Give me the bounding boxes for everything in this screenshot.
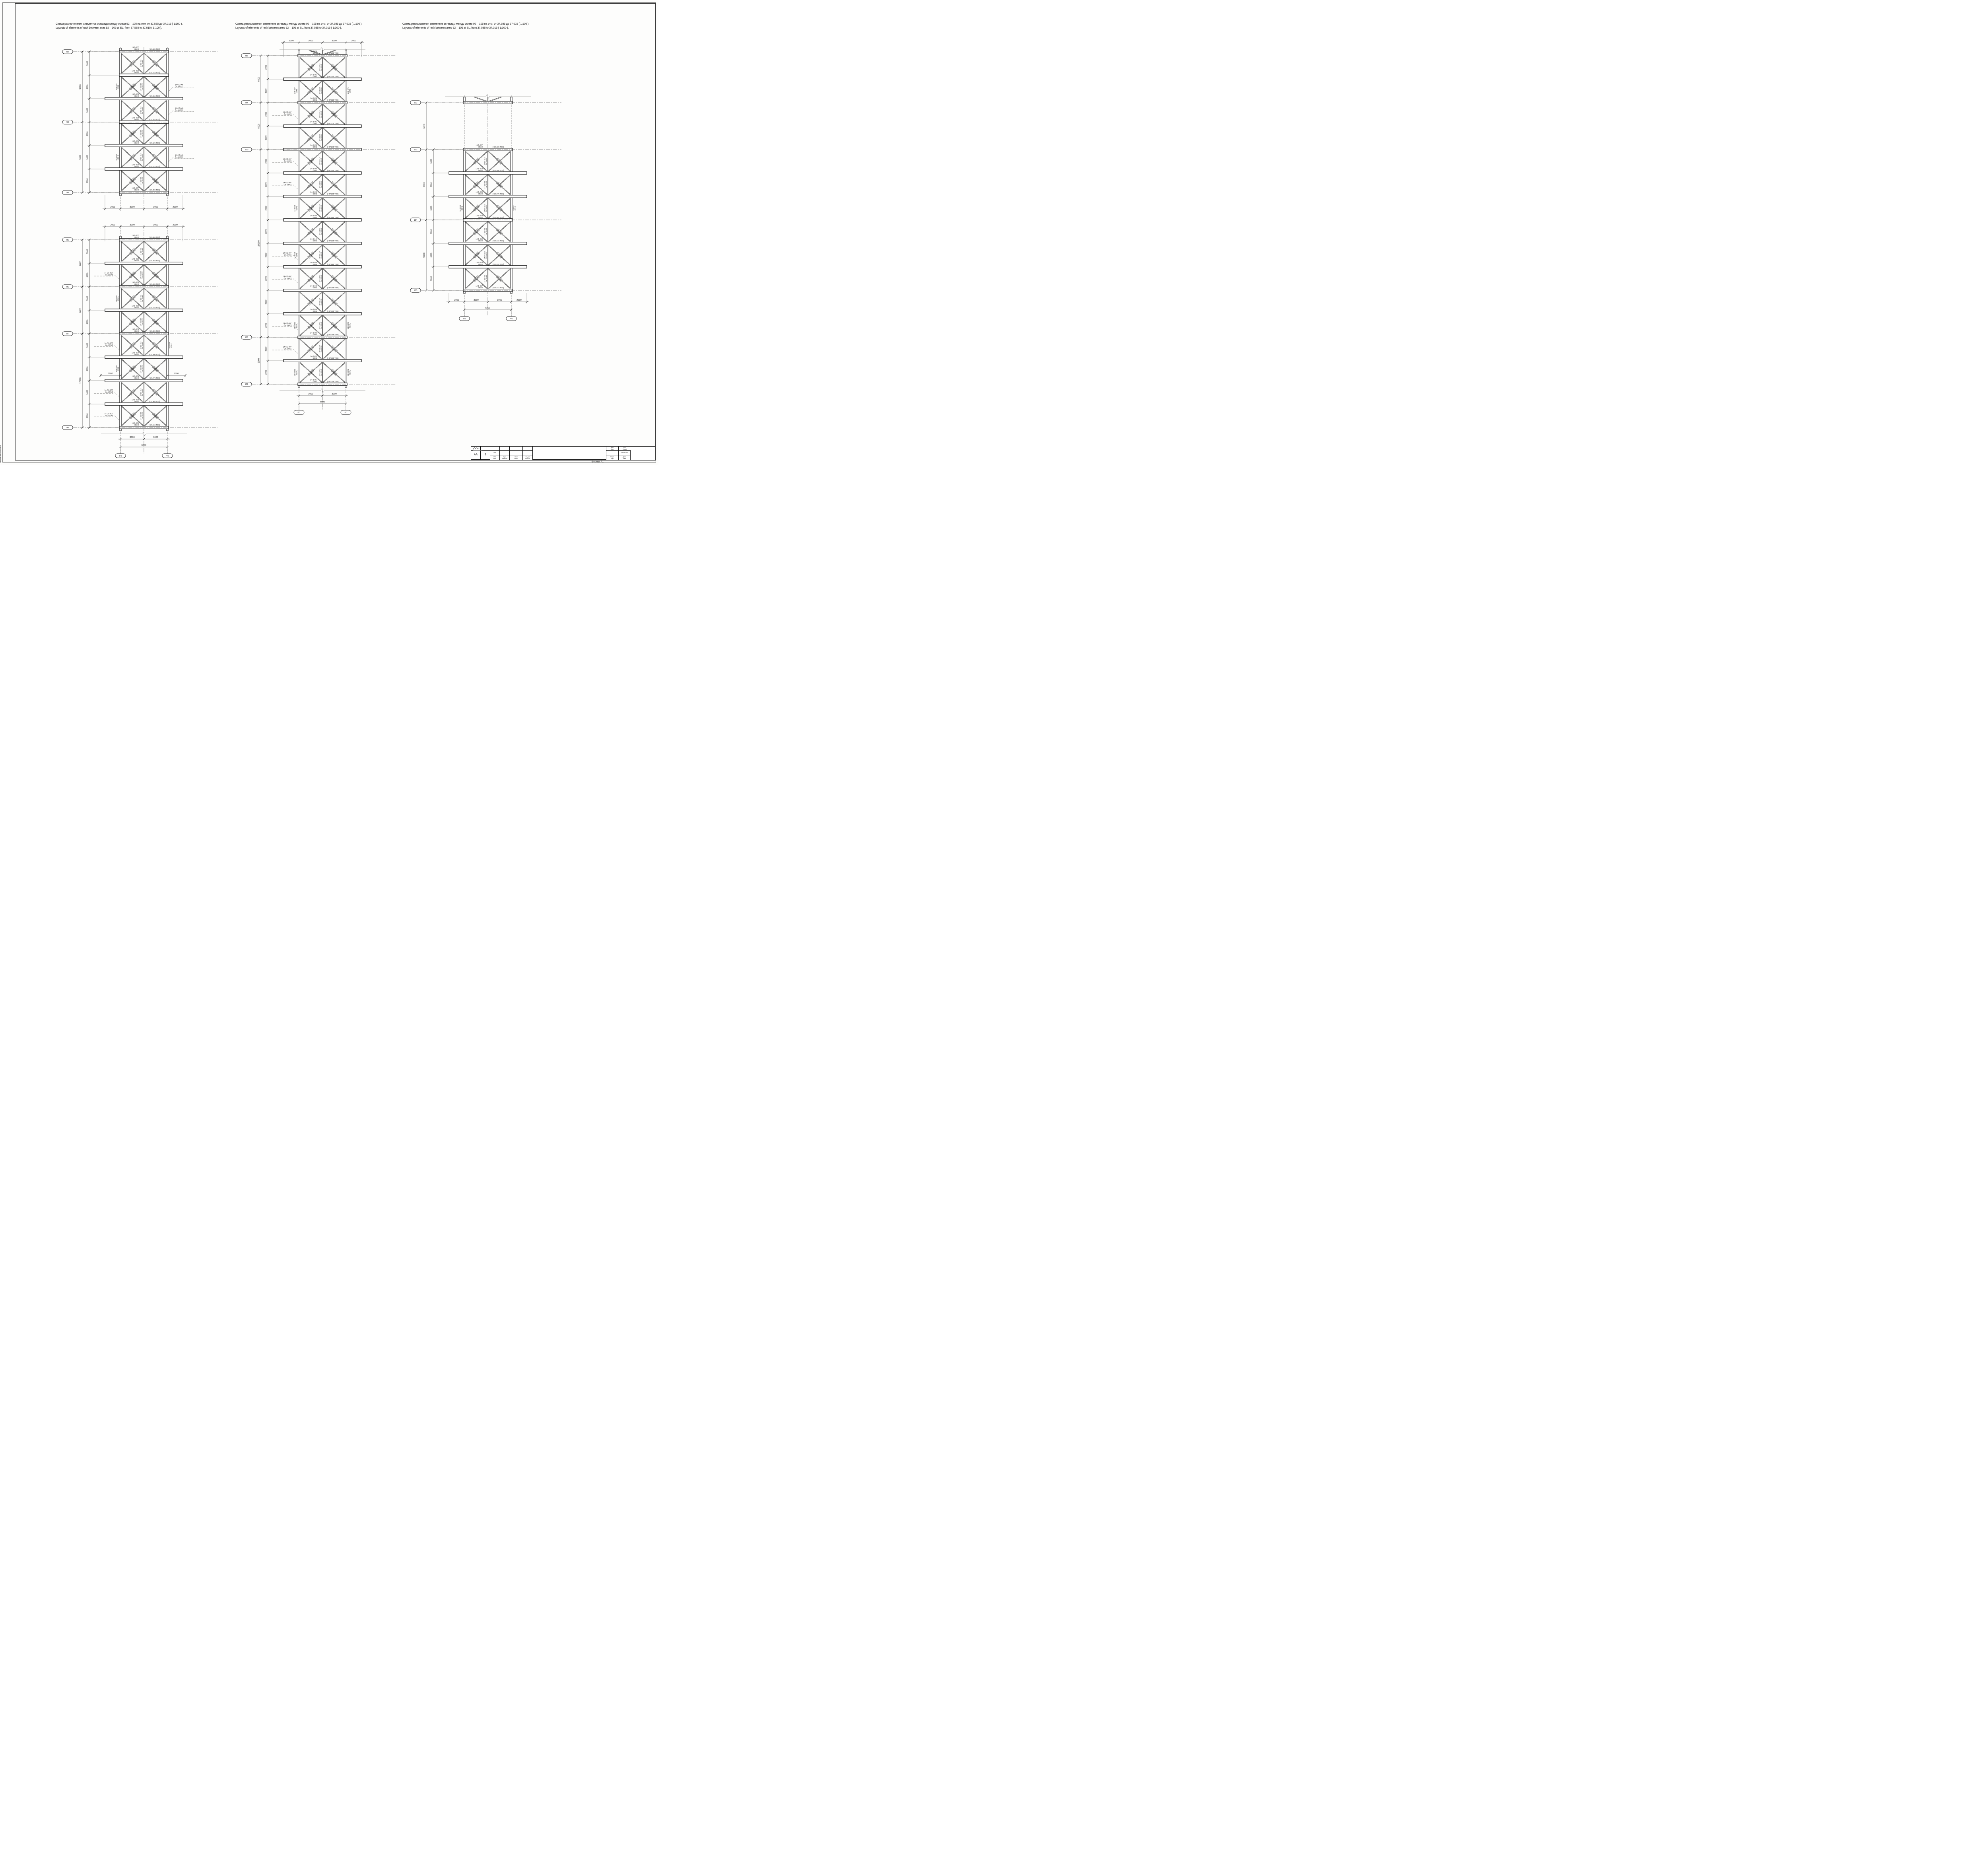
- svg-text:Gn.100X5: Gn.100X5: [142, 319, 144, 325]
- svg-text:I35H2: I35H2: [313, 76, 318, 78]
- column-label: 14-B-036I25H1: [294, 204, 298, 212]
- vertical-member-label: 14-CG-019Gn.100X5: [318, 64, 322, 71]
- svg-text:104: 104: [414, 219, 417, 222]
- svg-text:14-CG-010: 14-CG-010: [318, 251, 320, 259]
- drawing-title-2-ru: Схема расположения элементов эстакады ме…: [235, 22, 362, 26]
- svg-text:14-CG-019: 14-CG-019: [140, 154, 142, 161]
- svg-text:98: 98: [66, 427, 69, 429]
- svg-text:3000: 3000: [153, 436, 158, 439]
- column-label: 14-B-075I25H1: [169, 342, 173, 349]
- svg-text:101: 101: [245, 336, 248, 339]
- svg-text:6000: 6000: [80, 261, 82, 266]
- svg-text:Gn.100X5: Gn.100X5: [284, 325, 292, 327]
- svg-text:Gn.100X5: Gn.100X5: [105, 415, 113, 417]
- svg-text:(+37.015 TOS): (+37.015 TOS): [493, 287, 504, 289]
- svg-text:I25H1: I25H1: [296, 206, 298, 210]
- vertical-member-label: 14-CG-010Gn.100X5: [318, 204, 322, 212]
- svg-text:3000: 3000: [153, 206, 158, 208]
- svg-text:I35H2: I35H2: [313, 263, 318, 265]
- drawing-title-1-en: Layouts of elements of rack between axes…: [56, 26, 182, 30]
- svg-text:I35H2: I35H2: [313, 52, 318, 54]
- svg-text:Gn.100X5: Gn.100X5: [142, 60, 144, 67]
- svg-text:I35H2: I35H2: [313, 357, 318, 359]
- svg-text:3000: 3000: [265, 323, 268, 328]
- svg-text:(+37.315 TOS): (+37.315 TOS): [327, 99, 339, 101]
- drawing-sheet: 3000300030003000300030009000900020003000…: [0, 0, 658, 465]
- vertical-member-label: 14-CG-010Gn.100X5: [318, 181, 322, 189]
- svg-text:3000: 3000: [87, 414, 89, 418]
- svg-text:I35H2: I35H2: [134, 354, 139, 356]
- svg-text:(+37.405 TOS): (+37.405 TOS): [149, 330, 160, 332]
- svg-text:(+37.375 TOS): (+37.375 TOS): [149, 377, 160, 379]
- svg-text:95: 95: [66, 239, 69, 241]
- column-label: 14-B-035I25H1: [294, 251, 298, 258]
- svg-text:92: 92: [66, 51, 69, 53]
- drawing-axes-95-98: 3000300030003000300030003000300060006000…: [62, 224, 217, 458]
- vertical-member-label: 14-CG-019Gn.100X5: [318, 111, 322, 118]
- drawing-title-3-ru: Схема расположения элементов эстакады ме…: [402, 22, 529, 26]
- svg-text:(+37.195 TOS): (+37.195 TOS): [327, 287, 339, 289]
- svg-text:А/1: А/1: [510, 318, 513, 320]
- svg-text:Gn.100X5: Gn.100X5: [105, 274, 113, 276]
- svg-text:I35H2: I35H2: [134, 330, 139, 332]
- svg-text:Gn.100X5: Gn.100X5: [175, 109, 183, 111]
- svg-text:3000: 3000: [497, 299, 502, 301]
- svg-text:14-CG-019: 14-CG-019: [318, 111, 320, 118]
- svg-text:24000: 24000: [258, 240, 260, 247]
- svg-text:3000: 3000: [265, 183, 268, 187]
- vertical-member-label: 14-CG-010Gn.100X5: [140, 365, 144, 373]
- vertical-member-label: 14-CG-019Gn.100X5: [484, 204, 487, 212]
- svg-text:I35H2: I35H2: [478, 263, 483, 265]
- svg-text:3000: 3000: [265, 253, 268, 258]
- svg-text:6000: 6000: [258, 358, 260, 363]
- svg-text:I35H2: I35H2: [478, 169, 483, 171]
- vertical-member-label: 14-CG-010Gn.100X5: [318, 251, 322, 259]
- vertical-member-label: 14-CG-019Gn.100X5: [318, 322, 322, 329]
- svg-text:14-CG-019: 14-CG-019: [484, 275, 485, 282]
- svg-text:97: 97: [66, 333, 69, 335]
- svg-text:2000: 2000: [110, 206, 115, 208]
- svg-text:(+37.240 TOS): (+37.240 TOS): [327, 216, 339, 218]
- svg-text:3000: 3000: [431, 276, 433, 281]
- svg-text:14-CG-019: 14-CG-019: [484, 251, 485, 259]
- drawing-axes-102-105: 3000300030003000300030006000900090002000…: [410, 94, 561, 321]
- svg-text:(+37.225 TOS): (+37.225 TOS): [327, 240, 339, 242]
- svg-text:I35H2: I35H2: [134, 119, 139, 121]
- svg-text:I35H2: I35H2: [313, 240, 318, 242]
- svg-text:I25H1: I25H1: [296, 370, 298, 375]
- vertical-member-label: 14-CG-019Gn.100X5: [140, 248, 144, 255]
- drawing-title-3: Схема расположения элементов эстакады ме…: [402, 22, 529, 30]
- svg-text:В/1: В/1: [119, 455, 122, 457]
- svg-text:3000: 3000: [87, 390, 89, 395]
- svg-text:14-CG-019: 14-CG-019: [140, 412, 142, 420]
- svg-text:I35H2: I35H2: [134, 283, 139, 285]
- svg-text:3000: 3000: [265, 159, 268, 164]
- svg-text:3000: 3000: [130, 224, 134, 226]
- tb-date-value: 25.09.23: [619, 451, 631, 455]
- svg-text:14-CG-010: 14-CG-010: [140, 389, 142, 396]
- svg-text:3000: 3000: [431, 183, 433, 187]
- svg-text:Gn.100X5: Gn.100X5: [284, 348, 292, 350]
- svg-text:6000: 6000: [258, 124, 260, 128]
- vertical-member-label: 14-CG-019Gn.100X5: [318, 134, 322, 142]
- svg-text:I35H2: I35H2: [313, 169, 318, 171]
- drawing-canvas: 3000300030003000300030009000900020003000…: [0, 0, 658, 465]
- svg-text:Gn.100X5: Gn.100X5: [175, 86, 183, 88]
- svg-text:I35H2: I35H2: [313, 122, 318, 124]
- svg-text:I25H1: I25H1: [349, 88, 351, 93]
- svg-text:Gn.100X5: Gn.100X5: [142, 412, 144, 419]
- svg-text:(+37.075 TOS): (+37.075 TOS): [493, 193, 504, 195]
- vertical-member-label: 14-CG-019Gn.100X5: [484, 275, 487, 282]
- svg-text:3000: 3000: [87, 343, 89, 348]
- svg-text:В/1: В/1: [298, 412, 301, 414]
- tb-signature-cell: [606, 451, 619, 455]
- svg-text:I35H2: I35H2: [134, 142, 139, 144]
- svg-text:3000: 3000: [265, 112, 268, 117]
- format-label: Формат А1: [584, 461, 612, 463]
- svg-text:6000: 6000: [423, 124, 426, 128]
- svg-text:Gn.100X5: Gn.100X5: [142, 154, 144, 161]
- vertical-member-label: 14-CG-019Gn.100X5: [318, 298, 322, 306]
- vertical-member-label: 14-CG-019Gn.100X5: [140, 107, 144, 114]
- svg-text:Gn.100X5: Gn.100X5: [320, 252, 322, 258]
- vertical-member-label: 14-CG-019Gn.100X5: [140, 412, 144, 420]
- svg-text:14-CG-019: 14-CG-019: [140, 60, 142, 67]
- svg-text:14-CG-019: 14-CG-019: [484, 181, 485, 189]
- svg-text:(+37.330 TOS): (+37.330 TOS): [327, 76, 339, 78]
- column-label: 14-B-072I25H1: [347, 322, 351, 329]
- svg-text:Gn.100X5: Gn.100X5: [320, 87, 322, 94]
- svg-text:14-CG-019: 14-CG-019: [318, 369, 320, 376]
- svg-text:(+37.345 TOS): (+37.345 TOS): [149, 424, 160, 426]
- svg-text:2000: 2000: [454, 299, 459, 301]
- vertical-member-label: 14-CG-019Gn.100X5: [140, 83, 144, 91]
- svg-text:14-CG-019: 14-CG-019: [140, 271, 142, 279]
- svg-text:I35H2: I35H2: [134, 307, 139, 309]
- column-label: 14-B-032I35H2: [115, 83, 119, 90]
- svg-text:Gn.100X5: Gn.100X5: [486, 205, 487, 212]
- svg-text:14-CG-019: 14-CG-019: [318, 345, 320, 353]
- svg-text:3000: 3000: [87, 296, 89, 301]
- svg-text:14-CG-019: 14-CG-019: [484, 228, 485, 235]
- svg-text:2000: 2000: [173, 224, 177, 226]
- svg-text:14-CG-019: 14-CG-019: [318, 64, 320, 71]
- vertical-member-label: 14-CG-019Gn.100X5: [318, 87, 322, 95]
- svg-text:Gn.100X5: Gn.100X5: [142, 177, 144, 184]
- svg-text:14-CG-019: 14-CG-019: [140, 295, 142, 302]
- svg-text:I25H1: I25H1: [117, 366, 119, 371]
- vertical-member-label: 14-CG-019Gn.100X5: [140, 60, 144, 67]
- svg-text:Gn.100X5: Gn.100X5: [320, 64, 322, 71]
- svg-text:3000: 3000: [308, 40, 313, 42]
- svg-text:100: 100: [245, 149, 248, 151]
- vertical-member-label: 14-CG-019Gn.100X5: [140, 154, 144, 161]
- column-label: 14-B-032I35H2: [115, 154, 119, 161]
- svg-text:I25H1: I25H1: [349, 323, 351, 328]
- svg-text:I35H2: I35H2: [134, 424, 139, 426]
- svg-text:(+37.345 TOS): (+37.345 TOS): [327, 52, 339, 54]
- svg-text:3000: 3000: [265, 65, 268, 70]
- vertical-member-label: 14-CG-019Gn.100X5: [140, 271, 144, 279]
- svg-text:Gn.100X5: Gn.100X5: [486, 181, 487, 188]
- drawing-axes-92-94: 3000300030003000300030009000900020003000…: [62, 47, 217, 211]
- svg-text:Gn.100X5: Gn.100X5: [142, 272, 144, 278]
- svg-text:I25H1: I25H1: [296, 323, 298, 328]
- svg-text:I35H2: I35H2: [313, 310, 318, 312]
- svg-text:I25H1: I25H1: [171, 343, 173, 348]
- vertical-member-label: 14-CG-019Gn.100X5: [318, 157, 322, 165]
- drawing-axes-98-102: 3000300030003000300030003000300030003000…: [241, 40, 396, 414]
- column-label: 14-B-033I25H1: [294, 369, 298, 376]
- svg-text:I35H2: I35H2: [134, 72, 139, 74]
- svg-text:Gn.100X5: Gn.100X5: [320, 275, 322, 282]
- svg-text:(+37.585 TOS): (+37.585 TOS): [149, 48, 160, 50]
- svg-text:14-CG-019: 14-CG-019: [318, 322, 320, 329]
- svg-text:2000: 2000: [351, 40, 356, 42]
- svg-text:Gn.100X5: Gn.100X5: [142, 130, 144, 137]
- svg-text:(+37.420 TOS): (+37.420 TOS): [149, 307, 160, 309]
- svg-text:Gn.100X5: Gn.100X5: [142, 248, 144, 255]
- svg-text:Gn.100X5: Gn.100X5: [486, 275, 487, 282]
- svg-text:3000: 3000: [332, 393, 336, 395]
- svg-text:14-CG-019: 14-CG-019: [140, 107, 142, 114]
- vertical-member-label: 14-CG-019Gn.100X5: [484, 157, 487, 165]
- svg-text:I35H2: I35H2: [514, 206, 516, 210]
- svg-text:3000: 3000: [431, 206, 433, 211]
- svg-text:12000: 12000: [80, 377, 82, 384]
- svg-text:А/1: А/1: [345, 412, 348, 414]
- svg-text:6000: 6000: [485, 307, 490, 309]
- tb-col-sheet: ЛистSheet: [510, 455, 523, 460]
- svg-text:2000: 2000: [289, 40, 293, 42]
- svg-text:14-CG-010: 14-CG-010: [140, 365, 142, 373]
- svg-text:3000: 3000: [153, 224, 158, 226]
- svg-text:I35H2: I35H2: [461, 206, 463, 210]
- svg-text:I25H1: I25H1: [296, 88, 298, 93]
- vertical-member-label: 14-CG-010Gn.100X5: [140, 342, 144, 349]
- svg-text:(+37.435 TOS): (+37.435 TOS): [149, 283, 160, 285]
- column-label: 14-B-034I25H1: [294, 322, 298, 329]
- svg-text:Gn.100X5: Gn.100X5: [284, 278, 292, 280]
- svg-text:3000: 3000: [87, 249, 89, 254]
- svg-text:3000: 3000: [474, 299, 478, 301]
- svg-text:14-CG-019: 14-CG-019: [140, 248, 142, 255]
- svg-text:Gn.100X5: Gn.100X5: [320, 299, 322, 305]
- column-label: 14-B-037I25H1: [294, 87, 298, 94]
- tb-right-sheet-header: ЛистSheet: [619, 447, 631, 451]
- column-label: 14-B-032I35H2: [459, 204, 463, 212]
- svg-text:3000: 3000: [431, 253, 433, 258]
- svg-text:I35H2: I35H2: [478, 193, 483, 195]
- svg-text:(+37.150 TOS): (+37.150 TOS): [327, 357, 339, 359]
- vertical-member-label: 14-CG-019Gn.100X5: [140, 318, 144, 326]
- svg-text:14-CG-010: 14-CG-010: [140, 342, 142, 349]
- svg-text:3000: 3000: [87, 320, 89, 325]
- svg-text:А/1: А/1: [166, 455, 169, 457]
- svg-text:I35H2: I35H2: [478, 216, 483, 218]
- svg-text:Gn.100X5: Gn.100X5: [320, 369, 322, 376]
- svg-text:I35H2: I35H2: [478, 146, 483, 148]
- vertical-member-label: 14-CG-019Gn.100X5: [140, 130, 144, 138]
- svg-text:14-CG-019: 14-CG-019: [484, 157, 485, 165]
- tb-right-rev-header: РевRev: [606, 447, 619, 451]
- svg-text:I35H2: I35H2: [313, 287, 318, 289]
- svg-text:3000: 3000: [265, 347, 268, 352]
- svg-text:I35H2: I35H2: [134, 400, 139, 402]
- svg-text:14-CG-019: 14-CG-019: [484, 204, 485, 212]
- tb-col-rev: РевRev.: [490, 455, 500, 460]
- svg-text:I35H2: I35H2: [117, 155, 119, 159]
- svg-text:(+37.525 TOS): (+37.525 TOS): [149, 142, 160, 144]
- svg-text:Gn.100X5: Gn.100X5: [486, 228, 487, 235]
- svg-text:(+37.510 TOS): (+37.510 TOS): [149, 165, 160, 167]
- svg-text:(+37.390 TOS): (+37.390 TOS): [149, 354, 160, 356]
- drawing-title-3-en: Layouts of elements of rack between axes…: [402, 26, 529, 30]
- tb-right-rev-value: AA: [471, 451, 481, 460]
- title-block: РевRev ЛистSheet AA 25.09.23 AA 9 РевRev…: [471, 446, 655, 460]
- vertical-member-label: 14-CG-010Gn.100X5: [318, 275, 322, 282]
- svg-text:I35H2: I35H2: [313, 334, 318, 336]
- svg-text:14-CG-010: 14-CG-010: [318, 275, 320, 282]
- svg-text:3000: 3000: [87, 85, 89, 89]
- svg-text:94: 94: [66, 192, 69, 194]
- svg-text:102: 102: [245, 383, 248, 386]
- svg-text:(+37.270 TOS): (+37.270 TOS): [327, 169, 339, 171]
- svg-text:Gn.100X5: Gn.100X5: [105, 391, 113, 393]
- svg-text:Gn.100X5: Gn.100X5: [320, 181, 322, 188]
- svg-text:Gn.100X5: Gn.100X5: [142, 107, 144, 114]
- vertical-member-label: 14-CG-019Gn.100X5: [484, 228, 487, 235]
- svg-text:I35H2: I35H2: [313, 193, 318, 195]
- svg-text:(+37.360 TOS): (+37.360 TOS): [149, 400, 160, 402]
- svg-text:3000: 3000: [265, 276, 268, 281]
- svg-text:2000: 2000: [516, 299, 521, 301]
- svg-text:14-CG-010: 14-CG-010: [318, 204, 320, 212]
- tb-rev-value: AA: [490, 451, 500, 455]
- svg-text:93: 93: [66, 121, 69, 124]
- svg-text:I35H2: I35H2: [134, 260, 139, 262]
- tb-col-sign: Подп.Sign.: [606, 455, 619, 460]
- svg-text:3000: 3000: [87, 61, 89, 66]
- svg-text:(+37.135 TOS): (+37.135 TOS): [327, 381, 339, 383]
- svg-text:В/1: В/1: [463, 318, 466, 320]
- svg-text:98: 98: [245, 55, 248, 57]
- svg-text:Gn.100X5: Gn.100X5: [320, 346, 322, 352]
- svg-text:Gn.100X5: Gn.100X5: [105, 344, 113, 346]
- svg-text:14-CG-019: 14-CG-019: [140, 318, 142, 326]
- svg-text:(+37.090 TOS): (+37.090 TOS): [493, 169, 504, 171]
- drawing-title-2: Схема расположения элементов эстакады ме…: [235, 22, 362, 30]
- svg-text:I35H2: I35H2: [134, 236, 139, 238]
- svg-text:14-CG-019: 14-CG-019: [318, 134, 320, 142]
- tb-right-sheet-value: 9: [481, 451, 490, 460]
- svg-text:3000: 3000: [87, 132, 89, 136]
- svg-text:I35H2: I35H2: [134, 165, 139, 167]
- svg-text:Gn.100X5: Gn.100X5: [320, 111, 322, 118]
- svg-text:14-CG-019: 14-CG-019: [140, 177, 142, 185]
- vertical-member-label: 14-CG-010Gn.100X5: [318, 228, 322, 235]
- svg-text:14-CG-019: 14-CG-019: [318, 298, 320, 306]
- svg-text:I35H2: I35H2: [117, 84, 119, 89]
- svg-text:3000: 3000: [87, 155, 89, 160]
- svg-text:I35H2: I35H2: [134, 48, 139, 50]
- tb-col-date: ДатаDate: [619, 455, 631, 460]
- svg-text:(+37.030 TOS): (+37.030 TOS): [493, 263, 504, 265]
- svg-text:(+37.555 TOS): (+37.555 TOS): [149, 95, 160, 97]
- svg-text:96: 96: [66, 286, 69, 288]
- vertical-member-label: 14-CG-019Gn.100X5: [140, 177, 144, 185]
- svg-text:105: 105: [414, 290, 417, 292]
- svg-text:(+37.105 TOS): (+37.105 TOS): [493, 146, 504, 148]
- svg-text:3000: 3000: [265, 206, 268, 211]
- svg-text:Gn.100X5: Gn.100X5: [320, 228, 322, 235]
- svg-text:I35H2: I35H2: [313, 99, 318, 101]
- svg-text:I35H2: I35H2: [134, 377, 139, 379]
- svg-text:3000: 3000: [265, 229, 268, 234]
- svg-text:99: 99: [245, 102, 248, 104]
- svg-text:14-CG-019: 14-CG-019: [318, 87, 320, 95]
- svg-text:(+37.210 TOS): (+37.210 TOS): [327, 263, 339, 265]
- svg-text:(+37.255 TOS): (+37.255 TOS): [327, 193, 339, 195]
- svg-text:2000: 2000: [110, 224, 115, 226]
- column-label: 14-B-038I25H1: [115, 365, 119, 372]
- svg-text:I35H2: I35H2: [313, 381, 318, 383]
- svg-text:I35H2: I35H2: [478, 240, 483, 242]
- drawing-title-2-en: Layouts of elements of rack between axes…: [235, 26, 362, 30]
- svg-text:I25H1: I25H1: [349, 370, 351, 375]
- svg-text:3000: 3000: [87, 108, 89, 113]
- vertical-member-label: 14-CG-019Gn.100X5: [318, 369, 322, 376]
- tb-col-area: КучArea No: [500, 455, 510, 460]
- svg-text:Gn.100X5: Gn.100X5: [142, 84, 144, 90]
- vertical-member-label: 14-CG-019Gn.100X5: [484, 251, 487, 259]
- svg-text:(+37.045 TOS): (+37.045 TOS): [493, 240, 504, 242]
- svg-text:3000: 3000: [431, 229, 433, 234]
- vertical-member-label: 14-CG-019Gn.100X5: [140, 295, 144, 302]
- tb-main-area: [533, 447, 606, 460]
- svg-text:Gn.100X5: Gn.100X5: [142, 389, 144, 396]
- svg-text:103: 103: [414, 149, 417, 151]
- column-label: 14-B-070I35H2: [513, 204, 516, 212]
- drawing-title-1-ru: Схема расположения элементов эстакады ме…: [56, 22, 182, 26]
- svg-text:Gn.100X5: Gn.100X5: [284, 160, 292, 162]
- column-label: 14-B-071I25H1: [347, 369, 351, 376]
- svg-text:3000: 3000: [265, 370, 268, 375]
- svg-text:I25H1: I25H1: [296, 253, 298, 257]
- svg-text:102: 102: [414, 102, 417, 104]
- svg-text:14-CG-019: 14-CG-019: [140, 83, 142, 91]
- svg-text:2000: 2000: [173, 206, 177, 208]
- svg-text:Gn.100X5: Gn.100X5: [320, 158, 322, 165]
- column-label: 14-B-075I25H1: [347, 87, 351, 94]
- svg-text:Gn.100X5: Gn.100X5: [175, 156, 183, 158]
- svg-text:3000: 3000: [332, 40, 336, 42]
- svg-text:(+37.540 TOS): (+37.540 TOS): [149, 119, 160, 121]
- svg-text:3000: 3000: [87, 273, 89, 278]
- svg-text:Gn.100X5: Gn.100X5: [284, 184, 292, 186]
- svg-text:14-CG-019: 14-CG-019: [318, 157, 320, 165]
- svg-text:3000: 3000: [265, 300, 268, 305]
- svg-text:(+37.450 TOS): (+37.450 TOS): [149, 260, 160, 262]
- drawing-title-1: Схема расположения элементов эстакады ме…: [56, 22, 182, 30]
- svg-text:Gn.100X5: Gn.100X5: [142, 365, 144, 372]
- svg-text:14-CG-019: 14-CG-019: [140, 130, 142, 138]
- svg-text:Gn.100X5: Gn.100X5: [142, 295, 144, 302]
- svg-text:3000: 3000: [130, 206, 134, 208]
